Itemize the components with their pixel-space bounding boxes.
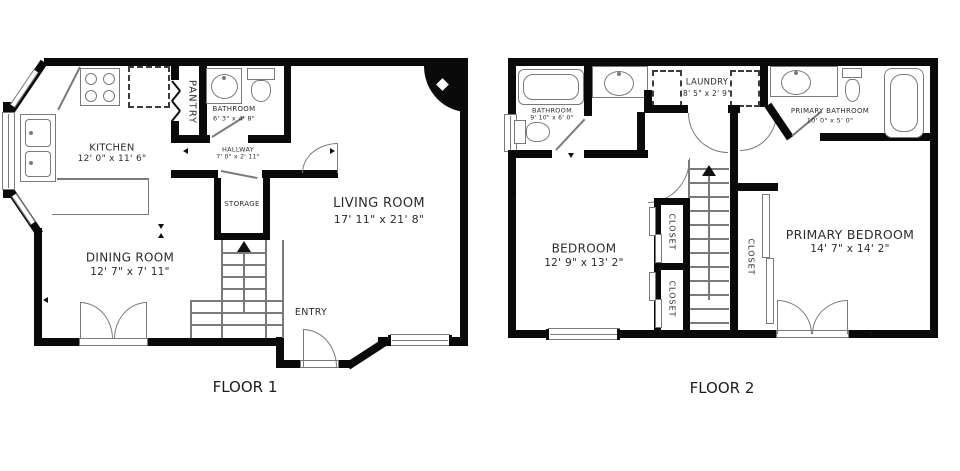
stove-burner [103, 90, 115, 102]
sliding-door-panel [655, 299, 662, 328]
wall [44, 58, 468, 66]
toilet-bowl [526, 122, 550, 142]
primary-bathroom-dims: 10' 0" x 5' 0" [807, 117, 854, 124]
hallway-label: HALLWAY [222, 146, 254, 153]
floor-plan-canvas: KITCHEN 12' 0" x 11' 6" PANTRY BATHROOM … [0, 0, 960, 471]
fireplace [424, 66, 468, 112]
stair-up-arrow [237, 241, 251, 252]
window-mullion [510, 116, 511, 150]
stove-burner [103, 73, 115, 85]
stove-burner [85, 73, 97, 85]
wall-diagonal [346, 337, 391, 370]
faucet-dot [29, 161, 33, 165]
faucet-dot [794, 71, 798, 75]
stair-tread [690, 252, 729, 254]
stair-up-arrow [702, 165, 716, 176]
dryer-dashed [730, 70, 760, 107]
primary-bathroom-label: PRIMARY BATHROOM [791, 108, 869, 116]
sliding-door-panel [649, 272, 656, 301]
door-arc [688, 113, 728, 153]
stair-arrow-stem [708, 176, 710, 300]
stair-tread [690, 238, 729, 240]
toilet-tank [514, 120, 526, 144]
stair-rail [221, 240, 223, 300]
door-threshold [79, 338, 148, 346]
wall [728, 105, 740, 113]
wall [683, 205, 690, 331]
pantry-label: PANTRY [187, 80, 198, 124]
stair-tread [190, 324, 283, 326]
french-door-arc [114, 302, 147, 339]
sliding-door-panel [762, 194, 770, 258]
wall [248, 135, 291, 143]
door-arc [648, 158, 690, 203]
floor2-title: FLOOR 2 [690, 379, 755, 397]
stair-tread [690, 266, 729, 268]
washer-dashed [652, 70, 682, 107]
stove-burner [85, 90, 97, 102]
stair-divider [221, 300, 223, 338]
stair-tread [690, 210, 729, 212]
door-leaf [221, 170, 258, 179]
bathroom2-label: BATHROOM [532, 107, 572, 114]
window-jamb [449, 335, 452, 346]
sliding-door-panel [766, 258, 774, 324]
dining-room-label: DINING ROOM [86, 251, 174, 264]
living-room-label: LIVING ROOM [333, 197, 425, 211]
dining-room-dims: 12' 7" x 7' 11" [90, 267, 170, 279]
french-door-arc [812, 300, 848, 334]
wall [654, 198, 690, 205]
stair-rail [265, 240, 267, 300]
stair-tread [690, 308, 729, 310]
entry-door-arc [303, 329, 337, 367]
wall [760, 58, 768, 107]
faucet-dot [222, 76, 226, 80]
wall [171, 170, 218, 178]
marker-arrow [511, 196, 516, 202]
wall [730, 113, 738, 331]
window-jamb [388, 335, 391, 346]
floor1-title: FLOOR 1 [213, 378, 278, 396]
marker-arrow [43, 297, 48, 303]
kitchen-dims: 12' 0" x 11' 6" [78, 155, 147, 165]
window-jamb [546, 329, 549, 340]
toilet-tank [842, 68, 862, 78]
bathroom2-dims: 9' 10" x 6' 0" [530, 116, 573, 123]
sliding-door-panel [655, 234, 662, 263]
wall [644, 105, 688, 113]
wall [508, 330, 550, 338]
wall [147, 338, 283, 346]
wall [508, 58, 938, 66]
toilet-bowl [845, 79, 860, 102]
counter-line [52, 214, 149, 216]
bathroom-dims: 6' 3" x 4' 8" [213, 115, 255, 122]
entry-label: ENTRY [295, 308, 327, 318]
kitchen-label: KITCHEN [89, 143, 134, 154]
refrigerator-dashed [128, 66, 170, 108]
french-door-arc [80, 302, 113, 339]
toilet-tank [247, 68, 275, 80]
closet-a-label: CLOSET [668, 213, 677, 250]
primary-bedroom-label: PRIMARY BEDROOM [786, 228, 915, 242]
wall [848, 330, 938, 338]
stair-tread [690, 280, 729, 282]
laundry-label: LAUNDRY [686, 78, 729, 87]
stair-tread [690, 294, 729, 296]
window-mullion [550, 334, 618, 335]
wall [618, 330, 777, 338]
bathtub-inner [523, 74, 579, 100]
marker-arrow [183, 148, 188, 154]
wall [637, 112, 645, 158]
wall [214, 233, 270, 240]
stair-tread [190, 312, 283, 314]
bathroom-label: BATHROOM [213, 106, 256, 114]
closet-b-label: CLOSET [668, 280, 677, 317]
stair-tread [690, 182, 729, 184]
wall [738, 183, 778, 191]
wall [584, 66, 592, 116]
counter-line [148, 178, 150, 215]
wall [284, 66, 291, 143]
primary-bedroom-dims: 14' 7" x 14' 2" [810, 244, 890, 256]
wall [34, 228, 42, 346]
toilet-bowl [251, 80, 271, 102]
faucet-dot [617, 72, 621, 76]
window [10, 69, 38, 107]
window-jamb [617, 329, 620, 340]
wall [171, 135, 210, 143]
stair-landing-edge [190, 300, 283, 302]
door-leaf [555, 119, 585, 151]
marker-arrow [158, 224, 164, 229]
primary-closet-label: CLOSET [747, 238, 756, 275]
bedroom-label: BEDROOM [552, 242, 617, 255]
hallway-dims: 7' 0" x 2' 11" [216, 155, 259, 162]
stair-arrow-stem [243, 250, 245, 312]
living-room-dims: 17' 11" x 21' 8" [334, 214, 424, 226]
stair-rail [190, 300, 192, 338]
sliding-door-panel [649, 207, 656, 236]
marker-arrow [330, 148, 335, 154]
wall [930, 58, 938, 338]
laundry-dims: 8' 5" x 2' 9" [683, 90, 731, 98]
wall [508, 150, 552, 158]
stair-tread [690, 196, 729, 198]
marker-arrow [568, 153, 574, 158]
french-door-arc [777, 300, 812, 334]
wall [171, 121, 179, 135]
faucet-dot [29, 131, 33, 135]
wall [171, 66, 179, 80]
marker-arrow [868, 332, 874, 337]
window-mullion [8, 114, 9, 188]
stair-tread [690, 224, 729, 226]
storage-label: STORAGE [224, 201, 259, 209]
stair-divider [265, 300, 267, 338]
window [12, 193, 36, 225]
window-mullion [392, 340, 448, 341]
wall [263, 178, 270, 240]
bathtub-inner [890, 74, 918, 132]
counter-line [57, 178, 149, 180]
counter-line [57, 67, 81, 111]
stair-tread [690, 322, 729, 324]
bedroom-dims: 12' 9" x 13' 2" [544, 258, 624, 270]
marker-arrow [158, 233, 164, 238]
wall [214, 178, 221, 240]
